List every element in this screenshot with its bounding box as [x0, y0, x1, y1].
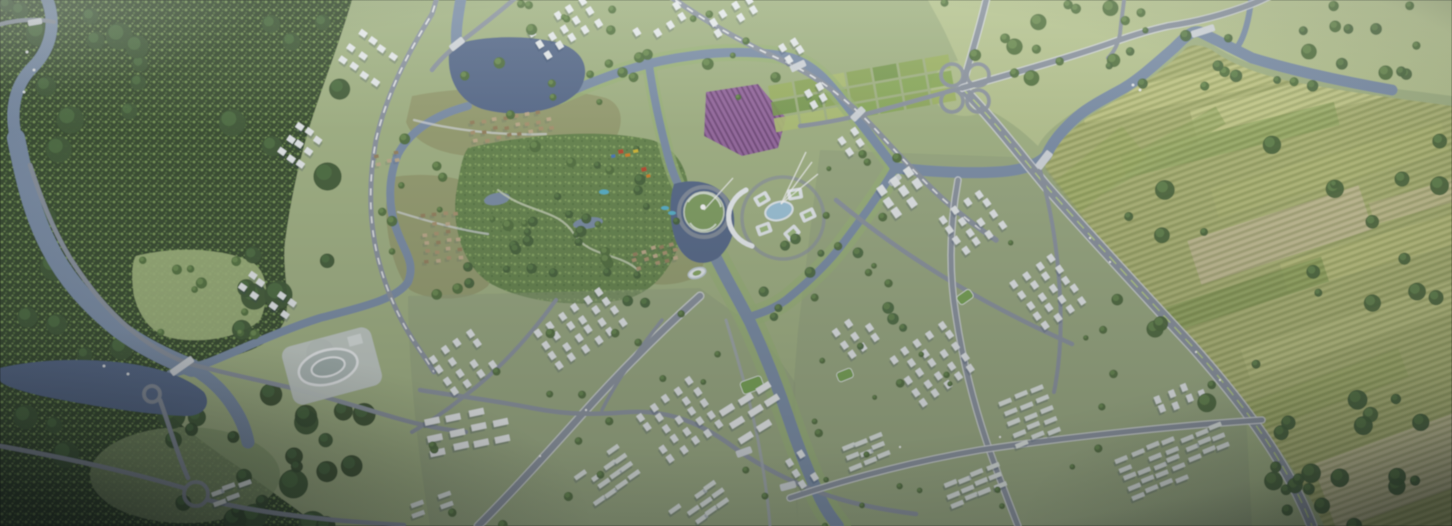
masterplan-scene [0, 0, 1452, 526]
photo-vignette [0, 0, 1452, 526]
aerial-masterplan-rendering [0, 0, 1452, 526]
